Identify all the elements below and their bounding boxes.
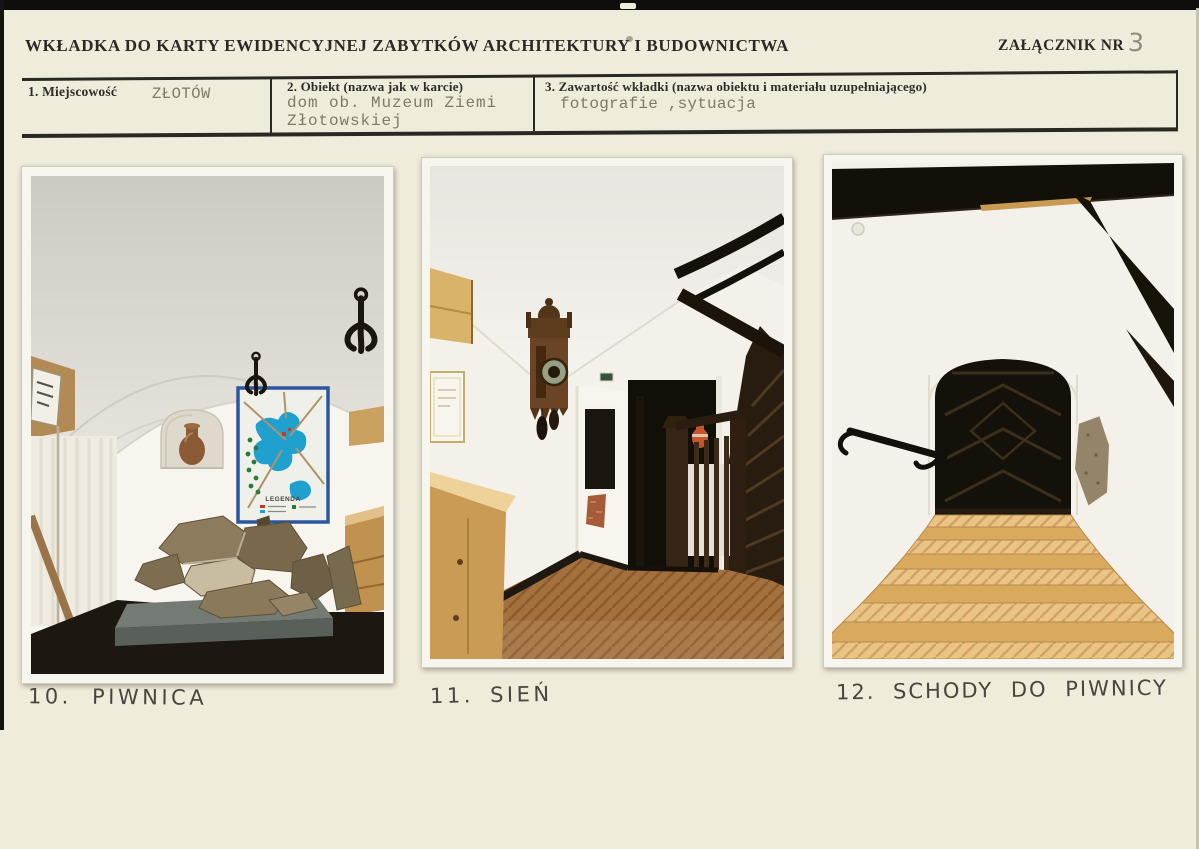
table-divider-1 — [270, 77, 272, 133]
wall-lamp — [852, 223, 864, 235]
scan-edge-notch — [620, 3, 636, 9]
field-contents-label: 3. Zawartość wkładki (nazwa obiektu i ma… — [545, 79, 927, 95]
document-title: WKŁADKA DO KARTY EWIDENCYJNEJ ZABYTKÓW A… — [25, 36, 789, 56]
field-object-value: dom ob. Muzeum Ziemi Złotowskiej — [287, 95, 497, 130]
caption-piwnica: 10. PIWNICA — [28, 684, 207, 710]
archive-card-page: WKŁADKA DO KARTY EWIDENCYJNEJ ZABYTKÓW A… — [0, 0, 1199, 849]
photo-sien — [421, 157, 793, 668]
table-divider-right — [1176, 70, 1178, 128]
field-locality-value: ZŁOTÓW — [152, 85, 211, 103]
curtain — [31, 436, 117, 626]
caption-schody: 12. SCHODY DO PIWNICY — [836, 676, 1168, 705]
map-poster: LEGENDA — [238, 388, 328, 522]
field-locality-label: 1. Miejscowość — [28, 84, 117, 100]
photo-sien-image — [430, 166, 784, 659]
caption-sien: 11. SIEŃ — [430, 682, 553, 708]
small-green-sign — [600, 373, 613, 381]
attachment-number-label: ZAŁĄCZNIK NR — [998, 37, 1124, 55]
upper-cabinet — [430, 268, 472, 344]
framed-certificate — [430, 372, 464, 442]
table-divider-2 — [533, 75, 535, 131]
attachment-number-handwritten: 3 — [1127, 28, 1144, 58]
wall-niche — [161, 410, 223, 468]
table-rule-bottom — [22, 127, 1178, 137]
photo-piwnica: LEGENDA — [21, 166, 394, 684]
wall-sign — [31, 356, 75, 438]
map-legend-title: LEGENDA — [265, 496, 300, 503]
photo-piwnica-image: LEGENDA — [31, 176, 384, 674]
photo-schody-image — [832, 163, 1174, 659]
field-contents-value: fotografie ,sytuacja — [560, 95, 756, 113]
fireplace-niche — [582, 406, 618, 492]
scan-edge-left — [0, 0, 4, 730]
cellar-door — [935, 359, 1071, 515]
scan-edge-top — [0, 0, 1199, 10]
field-object-label: 2. Obiekt (nazwa jak w karcie) — [287, 79, 463, 95]
photo-schody — [823, 154, 1183, 668]
newel-post — [666, 428, 688, 588]
